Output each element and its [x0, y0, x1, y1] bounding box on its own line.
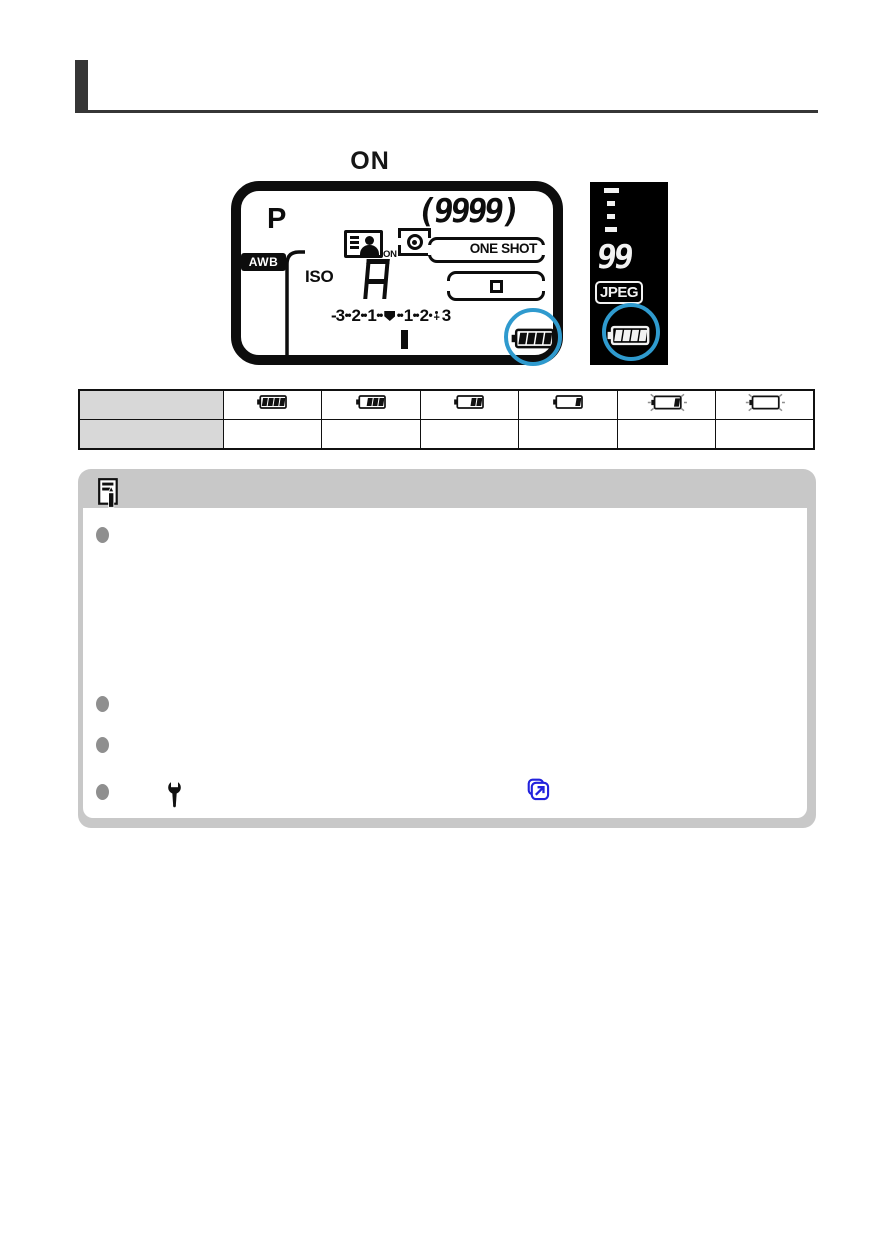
iso-label: ISO [305, 267, 333, 287]
battery-level-cell [420, 390, 519, 419]
note-bullet [96, 784, 109, 800]
table-header-cell [79, 390, 223, 419]
battery-level-cell [519, 390, 618, 419]
exposure-scale-mark: -3 [331, 306, 344, 326]
lcd-panel-illustration: P AWB ISO ON (9999) ONE SHOT -3••2••1•••… [231, 181, 563, 365]
battery-level-cell [617, 390, 716, 419]
table-cell [617, 419, 716, 449]
battery-level-3-icon [355, 397, 387, 414]
battery-level-1-icon [552, 397, 584, 414]
max-burst-value: 99 [595, 237, 634, 276]
exposure-scale-mark: •• [345, 308, 350, 322]
display-performance-icon [344, 230, 383, 258]
power-switch-on-label: ON [330, 147, 410, 176]
manual-page: ON P AWB ISO ON (9999) ONE SHOT -3••2••1… [0, 0, 893, 1259]
exposure-scale-mark: •• [376, 308, 381, 322]
battery-highlight-circle [602, 303, 660, 361]
table-cell [716, 419, 815, 449]
note-box [78, 469, 816, 828]
battery-icon-row [79, 390, 814, 419]
battery-text-row [79, 419, 814, 449]
drive-mode-box [447, 271, 545, 301]
vf-indicator-bar [604, 188, 619, 193]
table-cell [420, 419, 519, 449]
white-balance-badge: AWB [241, 253, 286, 271]
shooting-mode-value: P [267, 203, 286, 236]
exposure-scale-pointer [384, 311, 395, 321]
note-bullet [96, 527, 109, 543]
af-operation-box: ONE SHOT [428, 237, 545, 263]
display-performance-on-sub-label: ON [383, 249, 397, 260]
battery-level-2-icon [453, 397, 485, 414]
image-quality-badge: JPEG [595, 281, 643, 304]
exposure-scale-mark: 1 [367, 306, 375, 326]
vf-indicator-bar [607, 214, 615, 219]
heading-accent-bar [75, 60, 88, 113]
battery-level-0-blinking-icon [744, 400, 785, 417]
battery-level-cell [223, 390, 322, 419]
iso-auto-value [363, 259, 389, 299]
exposure-level-index-mark [401, 330, 408, 349]
vf-indicator-bar [605, 227, 617, 232]
viewfinder-display-illustration: 99 JPEG [590, 182, 668, 365]
table-header-cell [79, 419, 223, 449]
exposure-scale-mark: • [429, 308, 432, 322]
exposure-scale-mark: •• [361, 308, 366, 322]
table-cell [322, 419, 421, 449]
battery-level-cell [322, 390, 421, 419]
exposure-level-scale: -3••2••1••••1••2•+3 [331, 306, 450, 326]
battery-level-cell [716, 390, 815, 419]
exposure-scale-mark: + [433, 311, 441, 322]
table-cell [519, 419, 618, 449]
heading-rule [75, 110, 818, 113]
battery-level-1-blinking-icon [646, 400, 687, 417]
battery-level-table [78, 389, 815, 450]
exposure-scale-mark: 3 [442, 306, 450, 326]
vf-indicator-bar [607, 201, 615, 206]
note-bullet [96, 696, 109, 712]
note-content-area [83, 508, 807, 818]
exposure-scale-mark: •• [397, 308, 402, 322]
shots-remaining-value: (9999) [415, 191, 521, 230]
battery-highlight-circle [504, 308, 562, 366]
exposure-scale-mark: •• [413, 308, 418, 322]
exposure-scale-mark: 1 [404, 306, 412, 326]
single-shooting-icon [490, 280, 503, 293]
note-icon [98, 478, 121, 508]
page-link-icon[interactable] [527, 778, 550, 801]
setup-menu-wrench-icon [166, 780, 183, 808]
table-cell [223, 419, 322, 449]
evaluative-metering-icon [398, 228, 431, 256]
exposure-scale-mark: 2 [352, 306, 360, 326]
exposure-scale-mark: 2 [420, 306, 428, 326]
note-bullet [96, 737, 109, 753]
battery-level-4-icon [256, 397, 288, 414]
af-operation-value: ONE SHOT [470, 241, 537, 256]
